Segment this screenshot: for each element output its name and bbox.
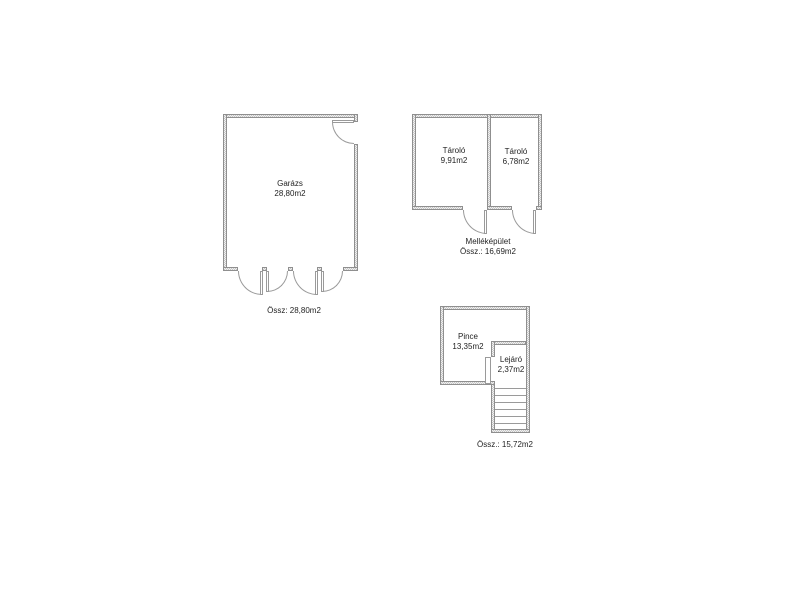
room-area: 2,37m2 [496,365,526,375]
summary-text: Össz.: 16,69m2 [446,247,530,257]
stairwell-label: Lejáró 2,37m2 [496,355,526,375]
garage-wall-top [223,114,358,118]
room-area: 6,78m2 [488,157,544,167]
garage-wall-right-lower [354,144,358,271]
cellar-summary-label: Össz.: 15,72m2 [462,440,548,450]
room-name: Garázs [248,179,332,189]
outbuilding-wall-bottom-seg [487,206,512,210]
storage-room-2-label: Tároló 6,78m2 [488,147,544,167]
garage-wall-left [223,114,227,271]
door-swing-arc [238,271,262,295]
cellar-room-label: Pince 13,35m2 [442,332,494,352]
stair-step-line [495,423,526,424]
storage-room-1-label: Tároló 9,91m2 [426,146,482,166]
garage-wall-bottom-seg [223,267,238,271]
door-swing-arc [332,122,354,144]
room-area: 28,80m2 [248,189,332,199]
door-swing-arc [293,271,317,295]
door-swing-arc [322,271,343,292]
room-name: Pince [442,332,494,342]
stair-step-line [495,416,526,417]
room-name: Tároló [488,147,544,157]
room-name: Lejáró [496,355,526,365]
cellar-wall-top [440,306,530,310]
room-area: 13,35m2 [442,342,494,352]
stair-step-line [495,402,526,403]
room-area: 9,91m2 [426,156,482,166]
outbuilding-title: Melléképület [446,237,530,247]
door-swing-arc [267,271,288,292]
summary-text: Össz.: 15,72m2 [462,440,548,450]
room-name: Tároló [426,146,482,156]
outbuilding-wall-bottom-seg [536,206,542,210]
outbuilding-wall-top [412,114,542,118]
stair-step-line [495,409,526,410]
stairwell-wall-bottom [491,429,530,433]
outbuilding-summary-label: Melléképület Össz.: 16,69m2 [446,237,530,257]
door-leaf [260,271,263,295]
cellar-door-leaf [485,357,491,384]
garage-summary-label: Össz: 28,80m2 [252,306,336,316]
summary-text: Össz: 28,80m2 [252,306,336,316]
stair-step-line [495,395,526,396]
stairwell-wall-top [491,341,526,345]
door-leaf [484,210,487,234]
garage-wall-right-upper [354,114,358,122]
door-leaf [315,271,318,295]
garage-wall-bottom-seg [343,267,358,271]
outbuilding-wall-left [412,114,416,210]
cellar-wall-right [526,306,530,433]
floor-plan-canvas: Garázs 28,80m2 Össz: 28,80m2 Tároló 9,91… [0,0,800,600]
garage-room-label: Garázs 28,80m2 [248,179,332,199]
door-leaf [533,210,536,234]
outbuilding-wall-bottom-seg [412,206,463,210]
stair-step-line [495,388,526,389]
